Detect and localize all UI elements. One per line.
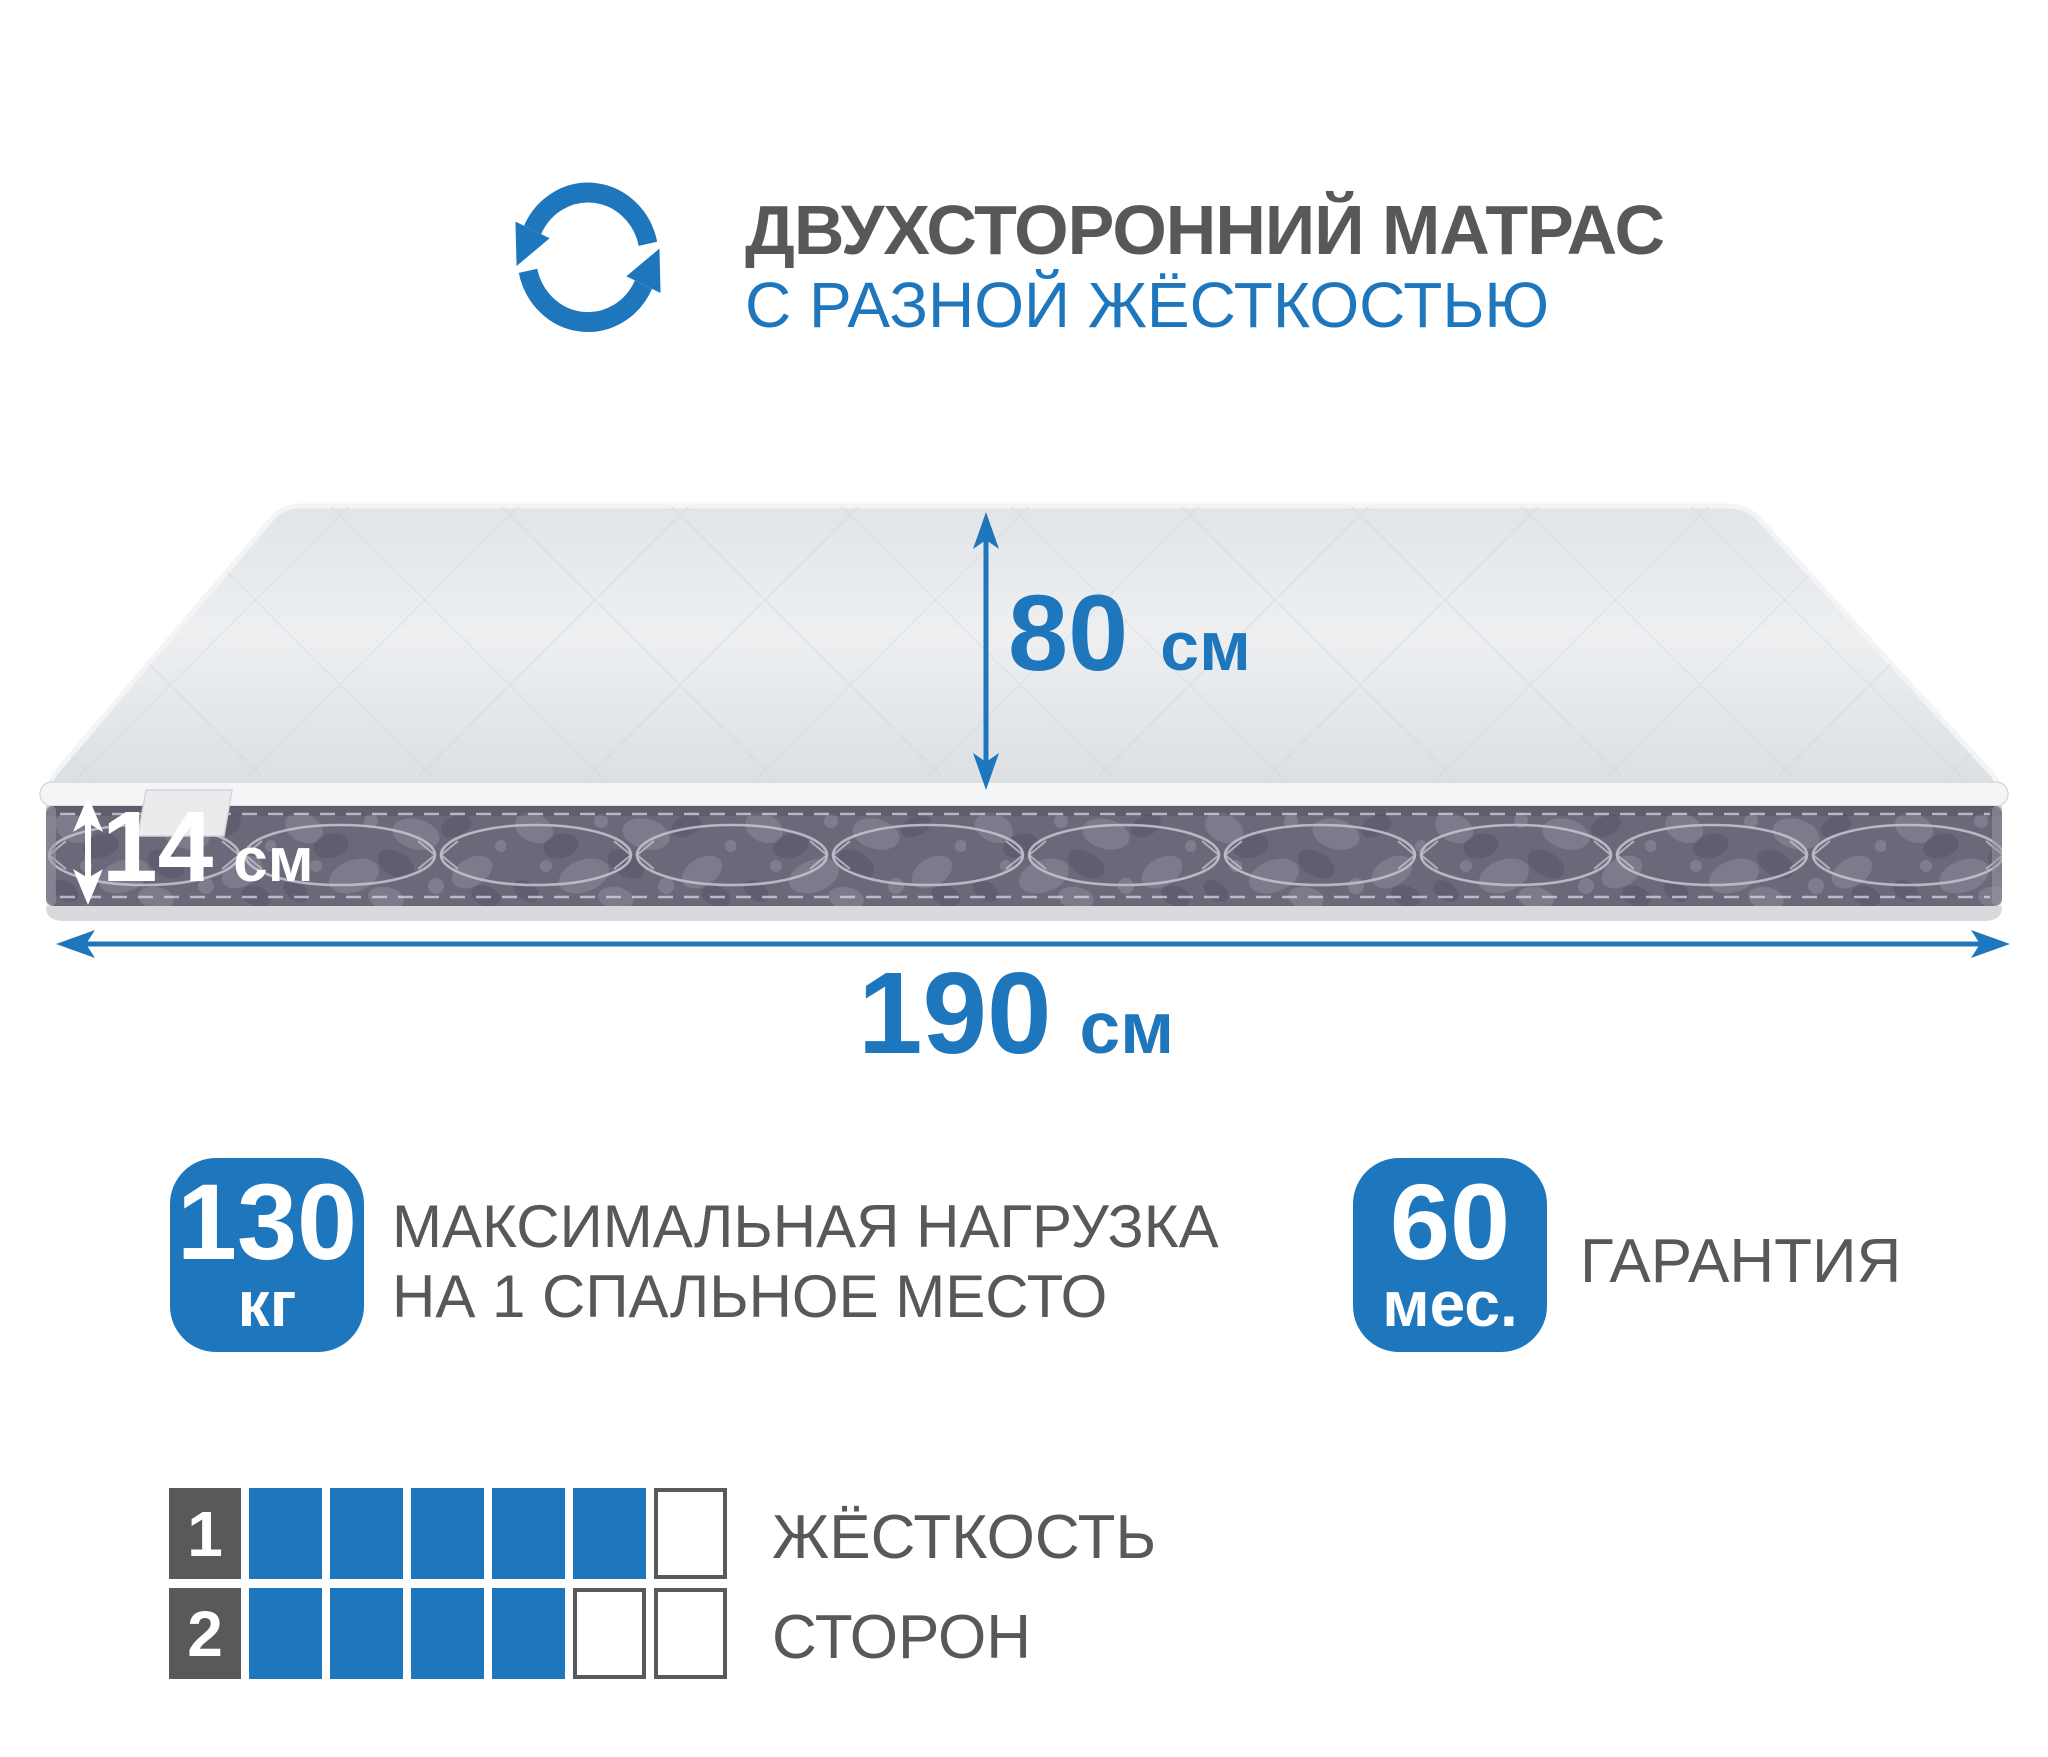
- mattress-piping-edge: [40, 782, 2008, 806]
- firmness-cell-filled: [573, 1488, 646, 1579]
- warranty-badge: 60 мес.: [1353, 1158, 1547, 1352]
- firmness-row-number: 2: [169, 1588, 241, 1679]
- length-value: 190: [858, 958, 1052, 1068]
- page-subtitle: С РАЗНОЙ ЖЁСТКОСТЬЮ: [745, 268, 1549, 342]
- page-title: ДВУХСТОРОННИЙ МАТРАС: [745, 190, 1664, 270]
- rotate-arrows-icon: [498, 168, 678, 358]
- height-value: 14: [102, 800, 213, 895]
- height-unit: см: [233, 832, 313, 891]
- length-dimension-label: 190 см: [858, 958, 1174, 1068]
- depth-value: 80: [1008, 582, 1128, 685]
- firmness-cell-empty: [654, 1488, 727, 1579]
- firmness-cell-filled: [330, 1488, 403, 1579]
- max-load-label-line2: НА 1 СПАЛЬНОЕ МЕСТО: [392, 1262, 1219, 1332]
- max-load-value: 130: [177, 1172, 357, 1271]
- infographic-canvas: ДВУХСТОРОННИЙ МАТРАС С РАЗНОЙ ЖЁСТКОСТЬЮ: [0, 0, 2048, 1757]
- warranty-value: 60: [1390, 1172, 1510, 1271]
- firmness-scale: 1 2: [169, 1488, 727, 1688]
- mattress-side-panel: [46, 790, 2002, 906]
- warranty-unit: мес.: [1382, 1271, 1517, 1338]
- firmness-cell-filled: [249, 1588, 322, 1679]
- firmness-cell-filled: [249, 1488, 322, 1579]
- depth-unit: см: [1160, 613, 1251, 680]
- firmness-cell-filled: [330, 1588, 403, 1679]
- max-load-badge: 130 кг: [170, 1158, 364, 1352]
- mattress-bottom-strip: [46, 906, 2002, 921]
- firmness-cell-filled: [492, 1488, 565, 1579]
- max-load-label: МАКСИМАЛЬНАЯ НАГРУЗКА НА 1 СПАЛЬНОЕ МЕСТ…: [392, 1192, 1219, 1332]
- firmness-row-number: 1: [169, 1488, 241, 1579]
- firmness-row-side2: 2: [169, 1588, 727, 1679]
- firmness-cell-empty: [573, 1588, 646, 1679]
- length-unit: см: [1080, 994, 1175, 1063]
- firmness-cell-filled: [492, 1588, 565, 1679]
- max-load-unit: кг: [238, 1271, 297, 1338]
- firmness-cells-side1: [249, 1488, 727, 1579]
- firmness-cell-empty: [654, 1588, 727, 1679]
- firmness-cell-filled: [411, 1588, 484, 1679]
- firmness-row-side1: 1: [169, 1488, 727, 1579]
- depth-dimension-label: 80 см: [1008, 582, 1251, 685]
- firmness-cells-side2: [249, 1588, 727, 1679]
- firmness-title-line1: ЖЁСТКОСТЬ: [772, 1502, 1156, 1573]
- firmness-title-line2: СТОРОН: [772, 1602, 1031, 1673]
- warranty-label: ГАРАНТИЯ: [1580, 1226, 1901, 1299]
- firmness-cell-filled: [411, 1488, 484, 1579]
- height-dimension-label: 14 см: [102, 800, 314, 895]
- max-load-label-line1: МАКСИМАЛЬНАЯ НАГРУЗКА: [392, 1192, 1219, 1262]
